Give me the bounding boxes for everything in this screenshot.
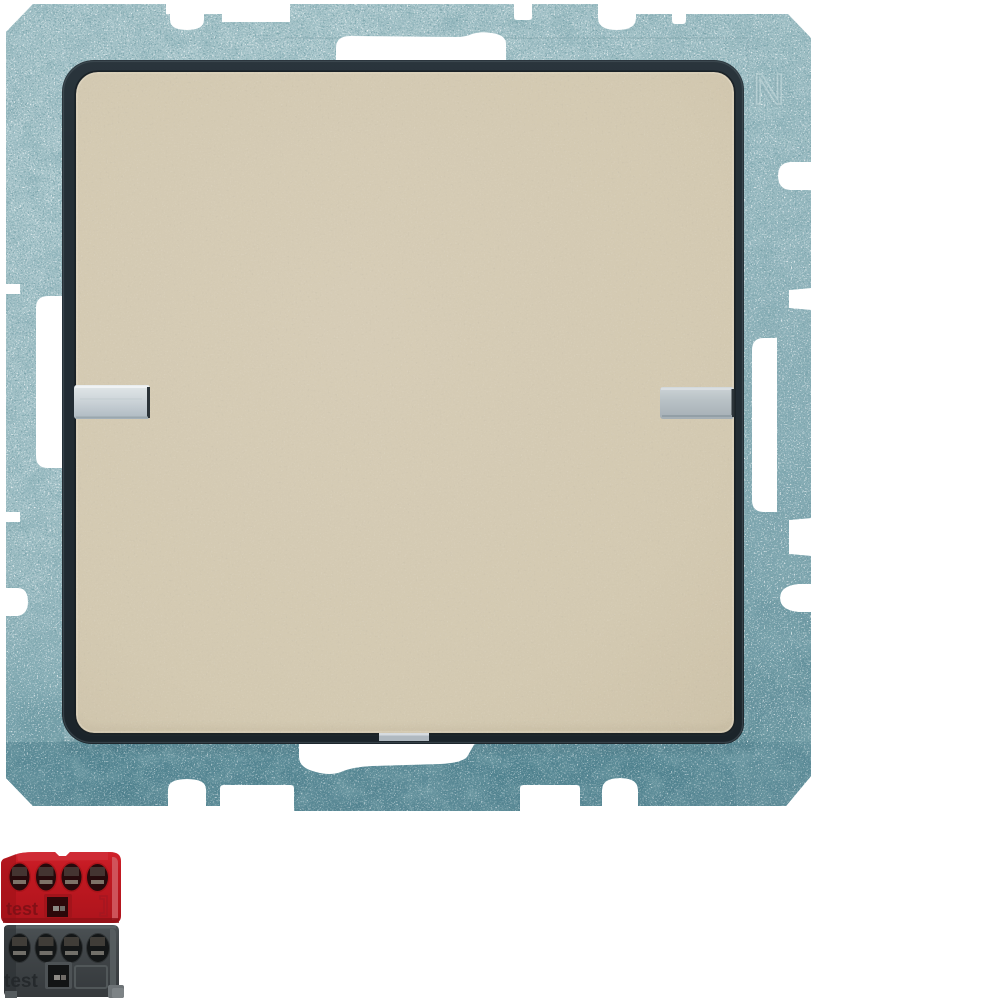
svg-text:N: N [753, 65, 785, 114]
svg-text:test: test [6, 899, 38, 919]
svg-text:test: test [4, 971, 38, 992]
